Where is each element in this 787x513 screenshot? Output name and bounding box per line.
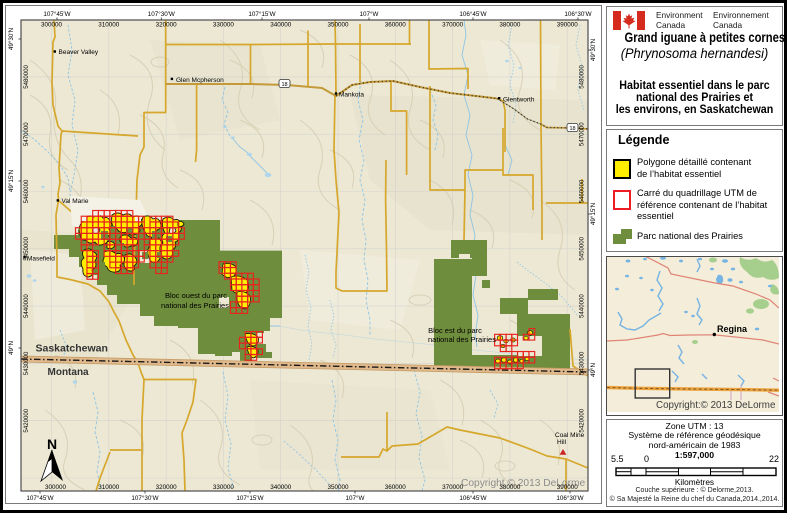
svg-text:107°15'W: 107°15'W — [248, 10, 275, 18]
svg-text:380000: 380000 — [499, 484, 521, 491]
svg-text:106°30'W: 106°30'W — [564, 10, 591, 18]
svg-text:390000: 390000 — [557, 22, 579, 29]
svg-text:5420000: 5420000 — [579, 408, 586, 432]
svg-text:390000: 390000 — [557, 484, 579, 491]
svg-text:Glentworth: Glentworth — [503, 97, 535, 104]
svg-text:330000: 330000 — [213, 484, 235, 491]
svg-text:national des Prairies: national des Prairies — [161, 301, 229, 310]
svg-text:107°45'W: 107°45'W — [26, 494, 53, 502]
svg-text:Bloc ouest du parc: Bloc ouest du parc — [165, 291, 227, 300]
svg-text:5460000: 5460000 — [579, 179, 586, 203]
svg-text:5470000: 5470000 — [23, 122, 30, 146]
svg-text:Val Marie: Val Marie — [62, 198, 89, 205]
svg-text:107°30'W: 107°30'W — [148, 10, 175, 18]
svg-text:49°N: 49°N — [589, 363, 597, 378]
svg-text:49°30'N: 49°30'N — [589, 38, 597, 61]
svg-text:350000: 350000 — [327, 484, 349, 491]
svg-text:106°30'W: 106°30'W — [556, 494, 583, 502]
svg-text:Regina: Regina — [717, 324, 748, 334]
svg-text:49°30'N: 49°30'N — [7, 27, 15, 50]
svg-text:18: 18 — [569, 126, 575, 132]
svg-text:106°45'W: 106°45'W — [459, 494, 486, 502]
svg-text:Copyright:© 2013 DeLorme: Copyright:© 2013 DeLorme — [656, 400, 776, 411]
svg-text:107°W: 107°W — [346, 494, 365, 502]
svg-text:107°W: 107°W — [360, 10, 379, 18]
svg-text:107°15'W: 107°15'W — [236, 494, 263, 502]
svg-text:Beaver Valley: Beaver Valley — [59, 49, 99, 56]
svg-text:370000: 370000 — [442, 484, 464, 491]
svg-text:5420000: 5420000 — [23, 408, 30, 432]
svg-text:330000: 330000 — [213, 22, 235, 29]
svg-text:Bloc est du parc: Bloc est du parc — [428, 326, 482, 335]
svg-text:107°45'W: 107°45'W — [43, 10, 70, 18]
svg-text:Montana: Montana — [48, 367, 90, 378]
svg-text:18: 18 — [281, 82, 287, 88]
svg-text:49°15'N: 49°15'N — [589, 202, 597, 225]
svg-text:5480000: 5480000 — [579, 64, 586, 88]
svg-text:Glen Mcpherson: Glen Mcpherson — [176, 77, 224, 84]
svg-text:340000: 340000 — [270, 484, 292, 491]
svg-text:5450000: 5450000 — [23, 236, 30, 260]
svg-text:340000: 340000 — [270, 22, 292, 29]
svg-text:310000: 310000 — [98, 484, 120, 491]
svg-text:5460000: 5460000 — [23, 179, 30, 203]
svg-text:310000: 310000 — [98, 22, 120, 29]
svg-text:300000: 300000 — [41, 22, 63, 29]
svg-text:360000: 360000 — [385, 484, 407, 491]
svg-text:N: N — [47, 436, 57, 452]
svg-text:106°45'W: 106°45'W — [459, 10, 486, 18]
svg-text:5480000: 5480000 — [23, 64, 30, 88]
svg-text:Masefield: Masefield — [27, 256, 55, 263]
svg-text:370000: 370000 — [442, 22, 464, 29]
svg-text:350000: 350000 — [327, 22, 349, 29]
svg-text:Saskatchewan: Saskatchewan — [36, 343, 108, 355]
svg-text:Hill: Hill — [557, 439, 567, 446]
svg-text:380000: 380000 — [499, 22, 521, 29]
svg-text:5470000: 5470000 — [579, 122, 586, 146]
svg-text:49°N: 49°N — [7, 341, 15, 356]
svg-text:5440000: 5440000 — [23, 294, 30, 318]
svg-text:49°15'N: 49°15'N — [7, 169, 15, 192]
svg-text:Mankota: Mankota — [339, 92, 364, 99]
svg-text:5450000: 5450000 — [579, 236, 586, 260]
svg-text:5430000: 5430000 — [579, 351, 586, 375]
svg-text:national des Prairies: national des Prairies — [428, 335, 496, 344]
svg-text:5430000: 5430000 — [23, 351, 30, 375]
svg-text:320000: 320000 — [156, 484, 178, 491]
svg-text:107°30'W: 107°30'W — [131, 494, 158, 502]
svg-text:320000: 320000 — [156, 22, 178, 29]
svg-text:300000: 300000 — [45, 484, 67, 491]
svg-text:5440000: 5440000 — [579, 294, 586, 318]
svg-text:360000: 360000 — [385, 22, 407, 29]
